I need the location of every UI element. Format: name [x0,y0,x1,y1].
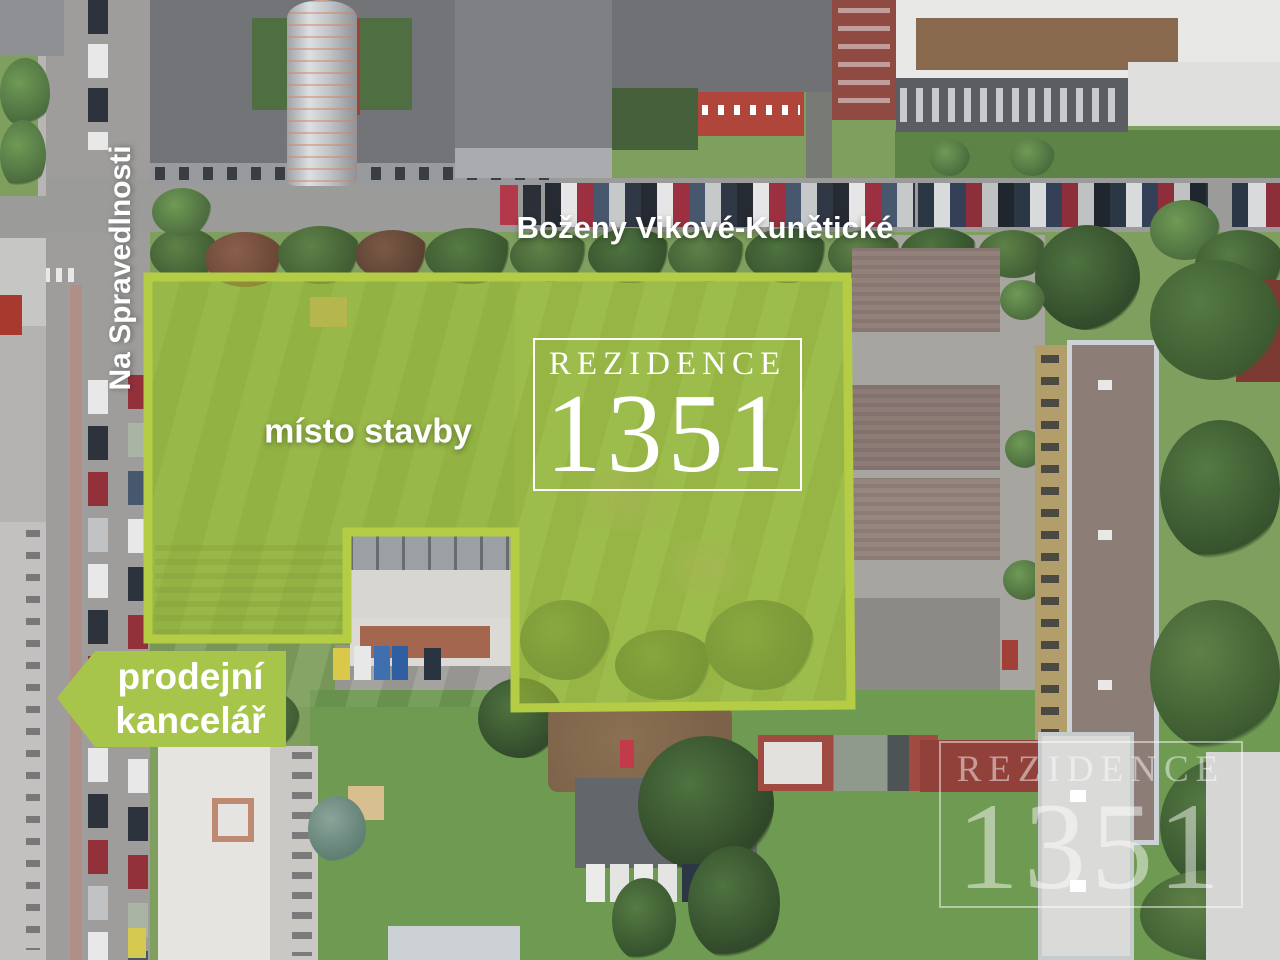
garage-roof [852,598,1000,690]
roof-vent [1098,680,1112,690]
logo-badge: REZIDENCE 1351 [527,332,808,497]
building [1128,62,1280,126]
building-facade [455,148,612,178]
building [455,0,612,150]
watermark-logo: REZIDENCE 1351 [935,737,1247,912]
building-windows [900,88,1124,122]
car [586,864,605,902]
sign [0,295,22,335]
street-label-horizontal: Boženy Vikové-Kunětické [505,210,905,246]
building-windows [838,8,890,112]
tree [152,188,212,236]
tree [1150,260,1280,380]
tree [278,226,363,284]
building-windows [1041,355,1059,735]
roof-vent [1098,530,1112,540]
sales-office-label: prodejní kancelář [95,651,286,747]
courtyard [357,18,412,110]
tree [1160,420,1280,560]
tree [308,796,366,862]
car-row [1232,183,1280,227]
tree [688,846,780,960]
sales-office-line2: kancelář [115,699,265,743]
garage-roof [852,478,1000,560]
tree [205,232,285,287]
logo-number: 1351 [527,383,808,486]
tree [520,600,610,680]
building [158,746,270,960]
sales-office-arrow: prodejní kancelář [57,651,286,747]
building-windows [702,105,800,115]
garage-door [764,742,822,784]
building [0,0,64,56]
courtyard [612,88,698,150]
garden-plots [155,545,345,635]
car [354,646,371,680]
roof-vent [1098,380,1112,390]
site-label: místo stavby [264,413,472,452]
building-windows [26,530,40,950]
car [424,648,441,680]
dirt-patch [650,540,760,595]
courtyard [252,18,292,110]
watermark-number: 1351 [935,790,1247,904]
tree [612,878,676,960]
car [128,928,146,958]
garage-roof [852,248,1000,332]
car [620,740,634,768]
shed [310,297,347,327]
tree [705,600,815,690]
car-row [88,0,108,150]
aerial-site-map: Boženy Vikové-Kunětické Na Spravedlnosti… [0,0,1280,960]
car [1002,640,1018,670]
building [612,0,832,92]
tree [1150,600,1280,750]
garage-roof [852,385,1000,470]
sales-office-line1: prodejní [118,655,264,699]
building [350,528,512,572]
tree [615,630,715,700]
building [806,92,832,178]
sidewalk [70,285,82,960]
building [0,326,46,522]
crosswalk [44,268,74,282]
tree [0,58,50,128]
tree [355,230,430,280]
building [388,926,520,960]
roof-vent [212,798,254,842]
building-windows [292,752,312,956]
car [333,648,350,680]
bush [1010,138,1055,176]
tree [425,228,515,284]
tree [1035,225,1140,330]
car [374,646,390,680]
tree [0,120,46,190]
car [392,646,408,680]
metal-cylinder-roof [287,0,357,186]
bush [1000,280,1045,320]
street-label-vertical: Na Spravedlnosti [104,145,138,390]
bush [930,140,970,176]
